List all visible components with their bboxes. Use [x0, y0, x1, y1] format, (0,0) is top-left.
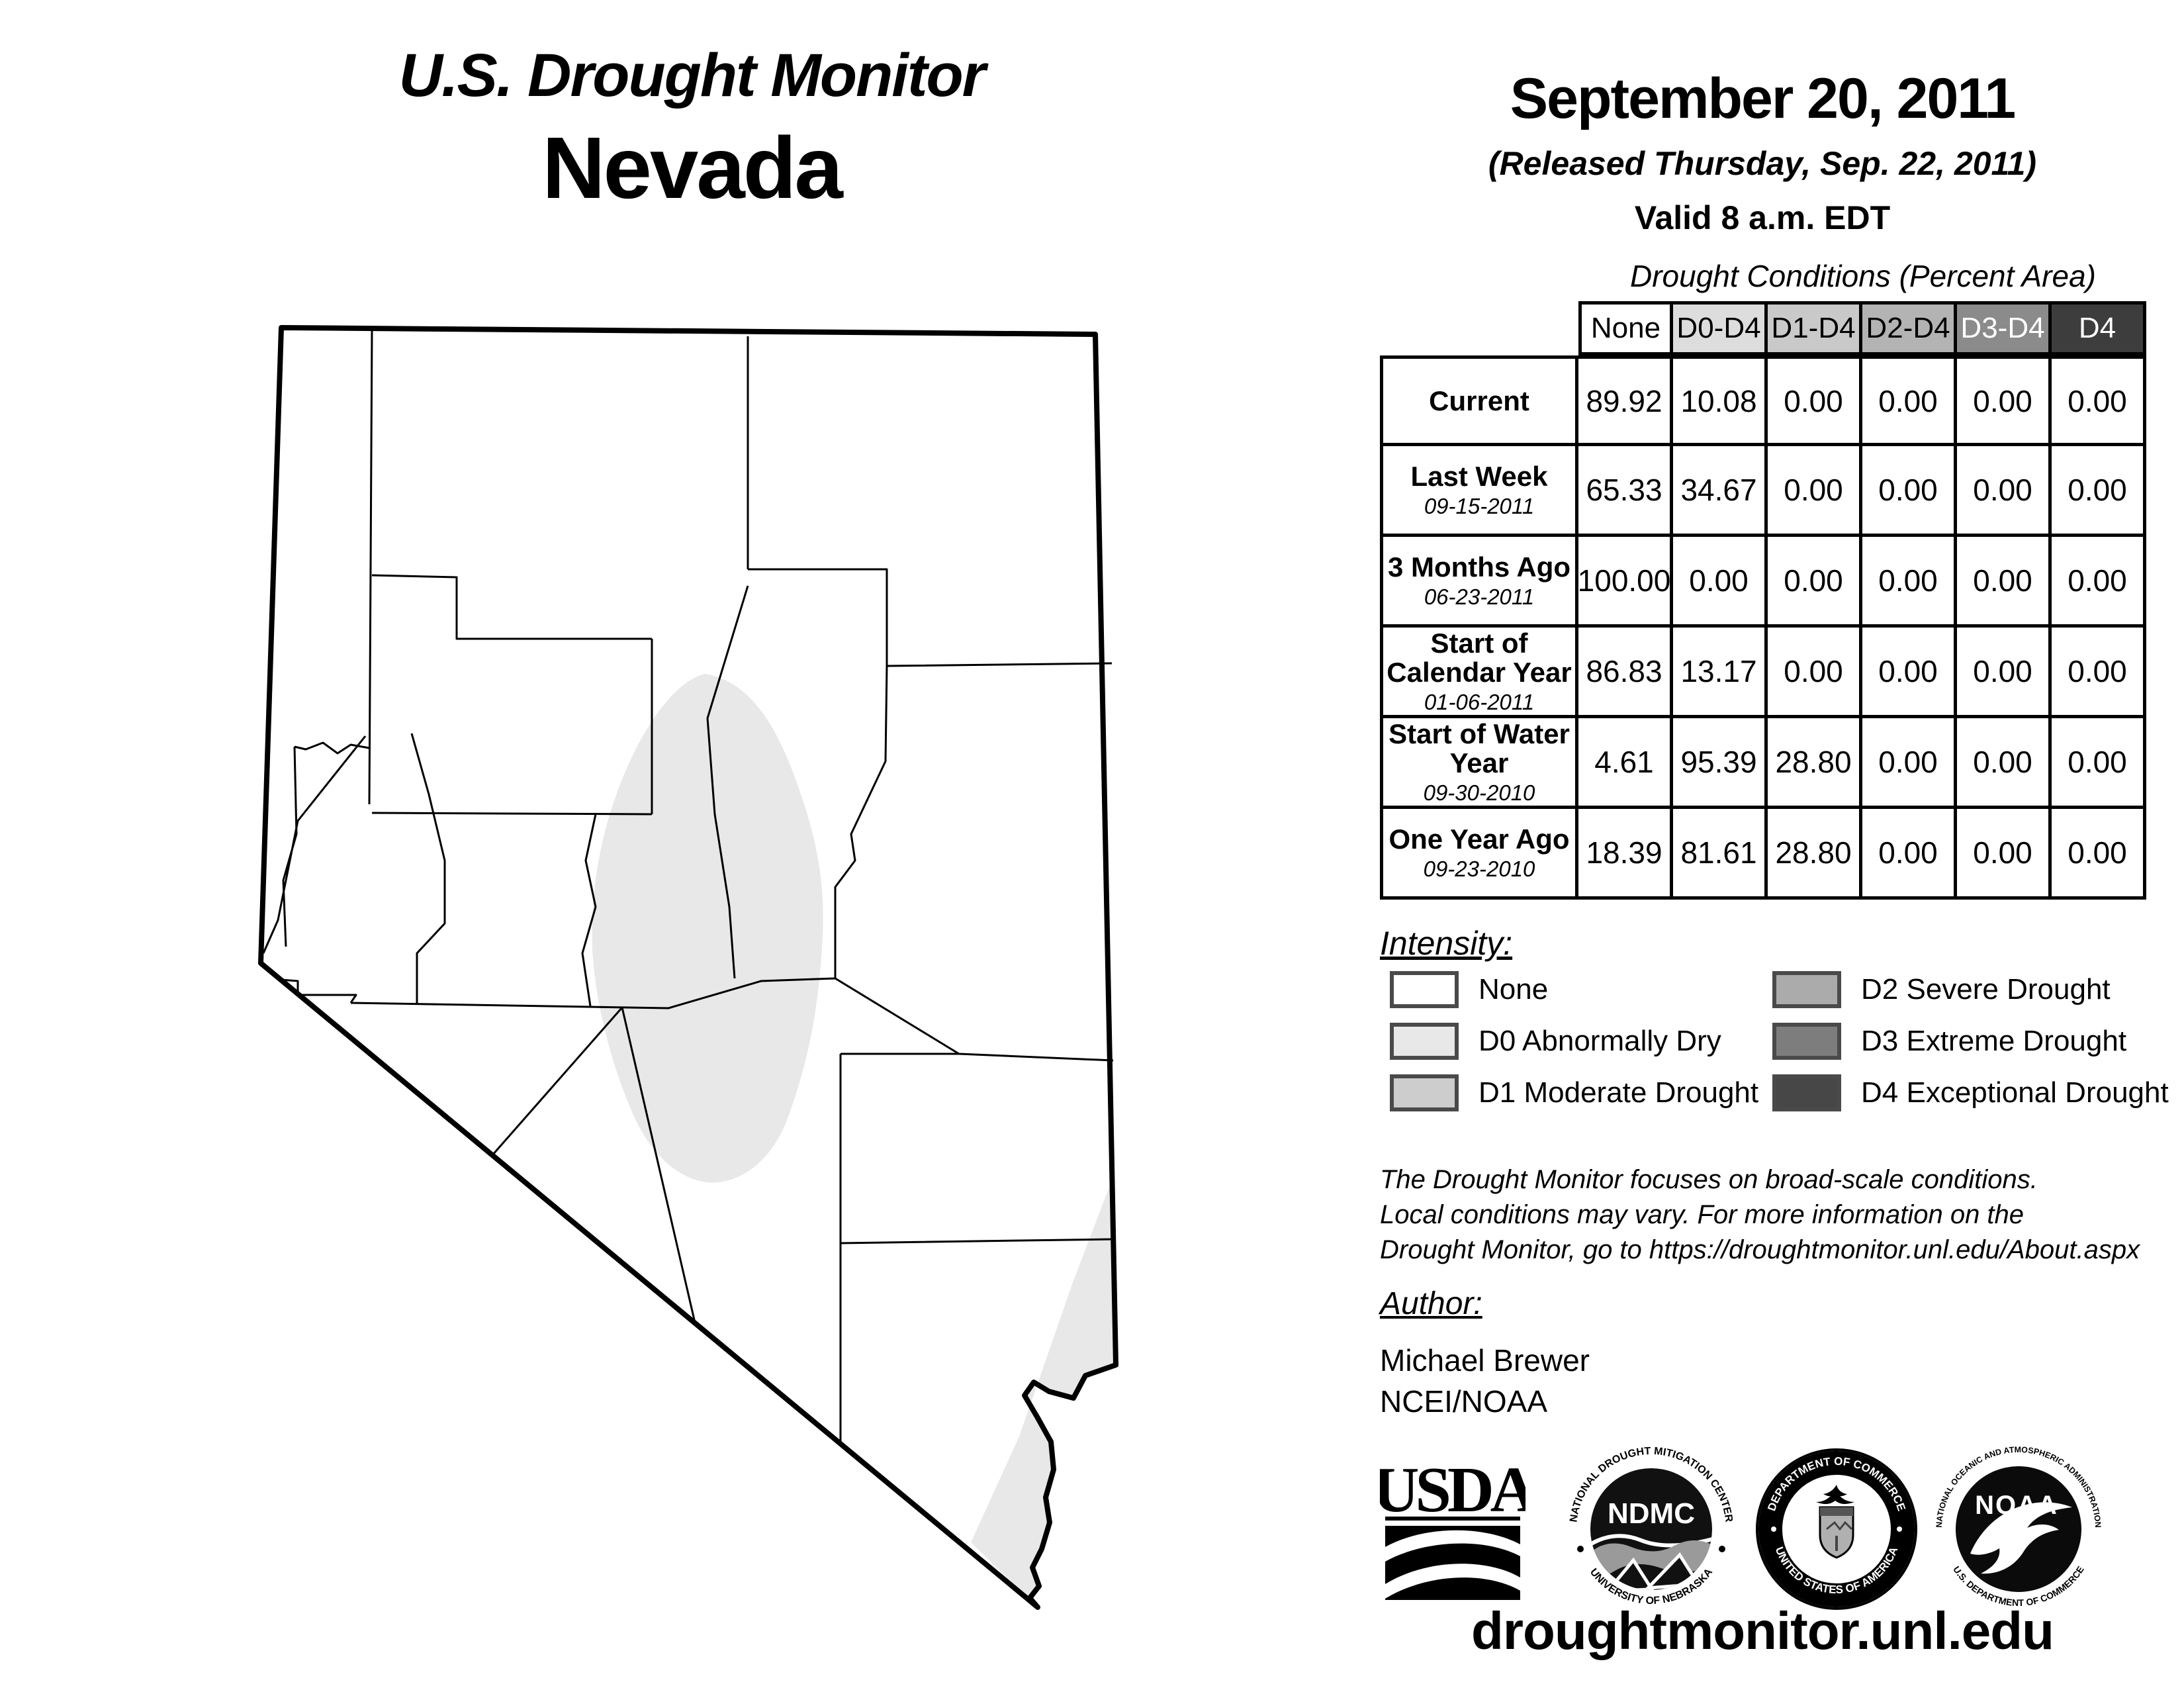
legend-item-none: None	[1390, 971, 1548, 1008]
author-name: Michael Brewer	[1380, 1342, 1590, 1378]
table-cell: 89.92	[1578, 355, 1673, 446]
state-title: Nevada	[251, 118, 1132, 218]
table-cell: 18.39	[1578, 809, 1673, 900]
valid-time: Valid 8 a.m. EDT	[1377, 199, 2148, 237]
map-date: September 20, 2011	[1377, 66, 2148, 132]
table-cell: 0.00	[1862, 809, 1957, 900]
ndmc-logo-icon: NATIONAL DROUGHT MITIGATION CENTER UNIVE…	[1569, 1446, 1734, 1612]
table-cell: 0.00	[1862, 446, 1957, 537]
table-cell: 0.00	[1673, 537, 1768, 628]
row-label: One Year Ago09-23-2010	[1380, 809, 1578, 900]
table-cell: 0.00	[2052, 718, 2146, 809]
table-cell: 0.00	[1862, 537, 1957, 628]
noaa-logo: NATIONAL OCEANIC AND ATMOSPHERIC ADMINIS…	[1936, 1446, 2101, 1612]
row-label: 3 Months Ago06-23-2011	[1380, 537, 1578, 628]
usda-logo-icon: USDA	[1380, 1446, 1525, 1612]
col-header-d0d4: D0-D4	[1673, 301, 1768, 355]
table-body: Current 89.92 10.08 0.00 0.00 0.00 0.00 …	[1380, 355, 2146, 900]
col-header-d2d4: D2-D4	[1862, 301, 1957, 355]
table-cell: 0.00	[1768, 446, 1862, 537]
legend-swatch-d2	[1772, 971, 1841, 1008]
table-cell: 28.80	[1768, 718, 1862, 809]
drought-monitor-report: U.S. Drought Monitor Nevada September 20…	[0, 0, 2184, 1688]
legend-item-d0: D0 Abnormally Dry	[1390, 1023, 1721, 1060]
table-cell: 95.39	[1673, 718, 1768, 809]
table-cell: 65.33	[1578, 446, 1673, 537]
table-cell: 13.17	[1673, 628, 1768, 718]
legend-swatch-d4	[1772, 1074, 1841, 1111]
table-cell: 0.00	[1862, 628, 1957, 718]
noaa-logo-icon: NATIONAL OCEANIC AND ATMOSPHERIC ADMINIS…	[1936, 1446, 2101, 1612]
table-cell: 100.00	[1578, 537, 1673, 628]
table-cell: 10.08	[1673, 355, 1768, 446]
table-title: Drought Conditions (Percent Area)	[1578, 258, 2148, 294]
legend-item-d4: D4 Exceptional Drought	[1772, 1074, 2169, 1111]
col-header-d4: D4	[2052, 301, 2146, 355]
table-cell: 0.00	[1768, 537, 1862, 628]
svg-text:NOAA: NOAA	[1975, 1491, 2058, 1520]
doc-logo-icon: DEPARTMENT OF COMMERCE UNITED STATES OF …	[1754, 1446, 1919, 1612]
legend-swatch-d3	[1772, 1023, 1841, 1060]
row-label: Last Week09-15-2011	[1380, 446, 1578, 537]
author-org: NCEI/NOAA	[1380, 1383, 1547, 1419]
table-cell: 0.00	[2052, 446, 2146, 537]
table-cell: 0.00	[1862, 718, 1957, 809]
page-title: U.S. Drought Monitor	[251, 41, 1132, 111]
table-cell: 81.61	[1673, 809, 1768, 900]
legend-swatch-d0	[1390, 1023, 1459, 1060]
table-cell: 0.00	[2052, 809, 2146, 900]
table-cell: 0.00	[1768, 628, 1862, 718]
table-cell: 0.00	[1957, 628, 2052, 718]
nevada-drought-map	[251, 311, 1132, 1622]
usda-logo: USDA	[1380, 1446, 1525, 1612]
table-cell: 0.00	[1957, 809, 2052, 900]
doc-logo: DEPARTMENT OF COMMERCE UNITED STATES OF …	[1754, 1446, 1919, 1612]
intensity-heading: Intensity:	[1380, 924, 1512, 962]
legend-item-d2: D2 Severe Drought	[1772, 971, 2111, 1008]
table-cell: 4.61	[1578, 718, 1673, 809]
svg-text:USDA: USDA	[1380, 1454, 1525, 1526]
table-cell: 0.00	[2052, 355, 2146, 446]
footer-url: droughtmonitor.unl.edu	[1377, 1601, 2148, 1662]
table-cell: 0.00	[1768, 355, 1862, 446]
row-label: Current	[1380, 355, 1578, 446]
legend-item-d1: D1 Moderate Drought	[1390, 1074, 1758, 1111]
ndmc-logo: NATIONAL DROUGHT MITIGATION CENTER UNIVE…	[1569, 1446, 1734, 1612]
disclaimer-text: The Drought Monitor focuses on broad-sca…	[1380, 1162, 2167, 1268]
table-cell: 0.00	[1957, 355, 2052, 446]
table-cell: 86.83	[1578, 628, 1673, 718]
table-cell: 28.80	[1768, 809, 1862, 900]
d0-central-area	[592, 674, 823, 1182]
row-label: Start of Water Year09-30-2010	[1380, 718, 1578, 809]
table-cell: 34.67	[1673, 446, 1768, 537]
table-cell: 0.00	[1862, 355, 1957, 446]
table-cell: 0.00	[2052, 537, 2146, 628]
col-header-d1d4: D1-D4	[1768, 301, 1862, 355]
col-header-d3d4: D3-D4	[1957, 301, 2052, 355]
table-header-row: None D0-D4 D1-D4 D2-D4 D3-D4 D4	[1578, 301, 2146, 355]
row-label: Start of Calendar Year01-06-2011	[1380, 628, 1578, 718]
legend-swatch-d1	[1390, 1074, 1459, 1111]
author-heading: Author:	[1380, 1286, 1482, 1322]
table-cell: 0.00	[2052, 628, 2146, 718]
table-cell: 0.00	[1957, 537, 2052, 628]
table-cell: 0.00	[1957, 446, 2052, 537]
legend-item-d3: D3 Extreme Drought	[1772, 1023, 2126, 1060]
legend-swatch-none	[1390, 971, 1459, 1008]
svg-text:NDMC: NDMC	[1608, 1497, 1695, 1530]
table-cell: 0.00	[1957, 718, 2052, 809]
col-header-none: None	[1578, 301, 1673, 355]
released-date: (Released Thursday, Sep. 22, 2011)	[1377, 144, 2148, 183]
